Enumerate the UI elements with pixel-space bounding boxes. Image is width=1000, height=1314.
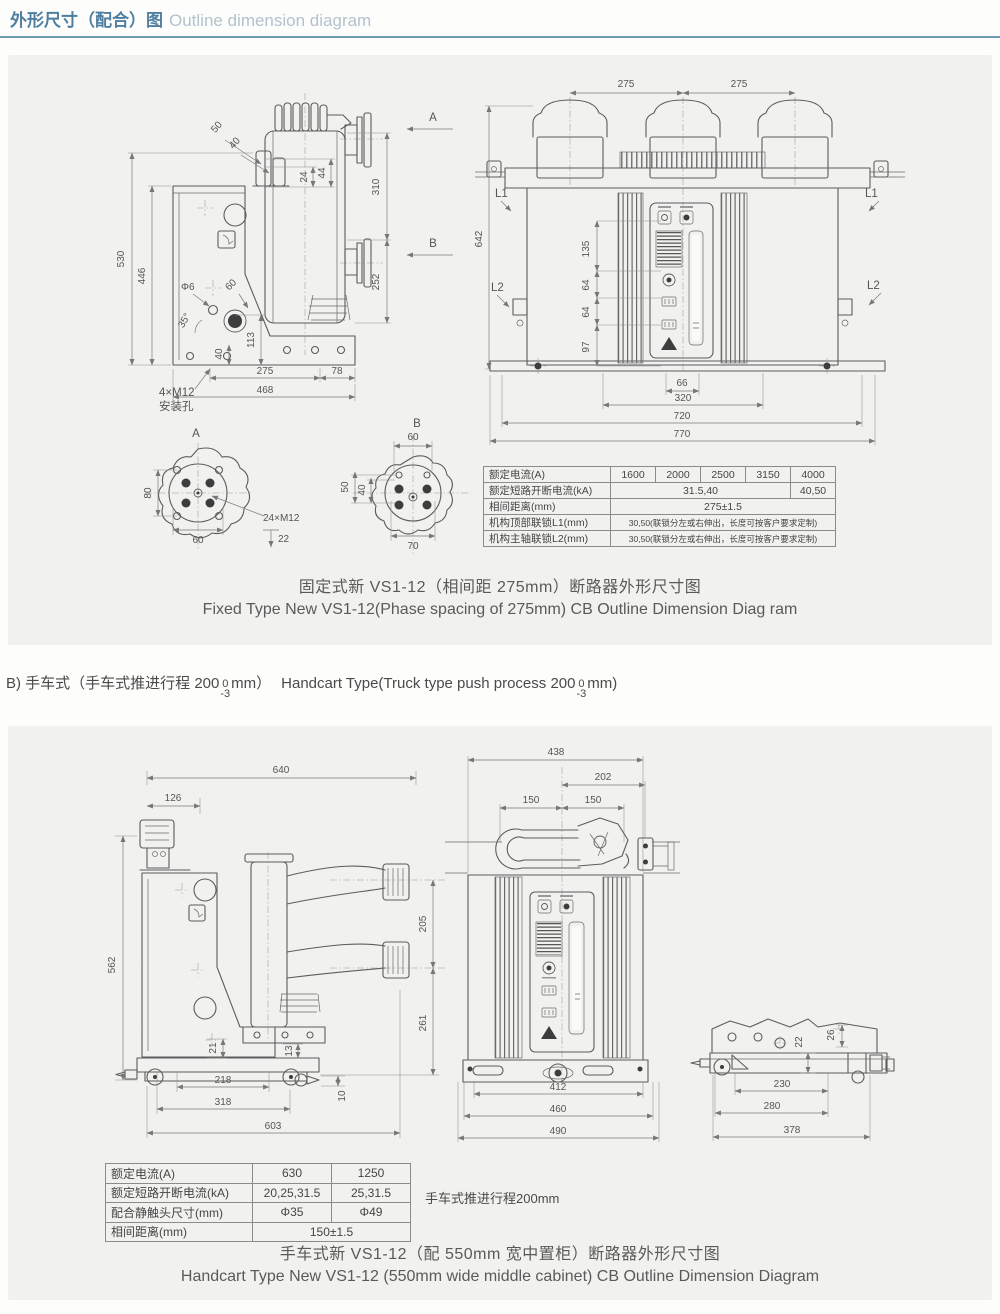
flange-blob-b [372,456,452,534]
dim-label-720: 720 [674,411,691,422]
dim-label-412: 412 [550,1082,567,1093]
detail-a-title: A [192,428,200,440]
page-title-zh: 外形尺寸（配合）图 [10,11,163,30]
spec-label: 额定短路开断电流(kA) [484,483,611,499]
dim-label-230: 230 [774,1079,791,1090]
dim-label-280: 280 [764,1101,781,1112]
upper-arm [287,866,385,904]
dim-label-22: 22 [794,1036,805,1048]
dim-label-275: 275 [257,366,274,377]
spec-label: 额定电流(A) [106,1164,253,1184]
spec-cell: 31.5,40 [611,483,791,499]
lower-arm [287,944,385,978]
handcart-spec-table: 额定电流(A) 630 1250 额定短路开断电流(kA) 20,25,31.5… [105,1163,411,1242]
dim-label-642: 642 [475,230,485,247]
dim-label-44: 44 [317,167,328,179]
dim-label-252: 252 [371,273,382,290]
mechanism-frame [173,186,355,365]
table-row: 机构顶部联锁L1(mm) 30,50(联锁分左或右伸出，长度可按客户要求定制) [484,515,836,531]
dim-label-10: 10 [337,1090,348,1102]
pole-column [251,862,287,1027]
section-arrow-b: B [429,238,437,250]
spec-cell: 150±1.5 [253,1222,411,1242]
table-row: 额定短路开断电流(kA) 31.5,40 40,50 [484,483,836,499]
dim-label-66: 66 [676,378,688,389]
spec-cell: 4000 [791,467,836,483]
dim-label-13: 13 [284,1045,295,1057]
page: 外形尺寸（配合）图Outline dimension diagram 530 4… [0,0,1000,1314]
dim-label-80: 80 [143,487,154,499]
tolerance-stack: 0-3 [220,679,230,699]
dim-label-40-top: 40 [227,135,243,151]
handcart-caption-zh: 手车式新 VS1-12（配 550mm 宽中置柜）断路器外形尺寸图 [8,1240,992,1264]
dim-label-318: 318 [215,1097,232,1108]
dim-label-770: 770 [674,429,691,440]
dim-label-460: 460 [550,1104,567,1115]
dim-label-64a: 64 [581,279,592,291]
dim-label-depth-22: 22 [278,534,290,545]
spec-label: 配合静触头尺寸(mm) [106,1203,253,1223]
fixed-type-panel: 530 446 50 40 44 24 310 252 A B Φ6 60 35… [8,55,992,645]
dim-label-490: 490 [550,1126,567,1137]
spec-cell: 30,50(联锁分左或右伸出，长度可按客户要求定制) [611,515,836,531]
dim-label-261: 261 [418,1014,429,1031]
detail-a-drawing: A 80 60 24×M12 22 [133,423,333,563]
section-b-en-end: mm) [587,675,617,692]
dim-label-150-right: 150 [585,795,602,806]
dim-label-40-bottom: 40 [214,348,225,360]
handcart-travel-note: 手车式推进行程200mm [425,1188,559,1207]
dim-label-78: 78 [331,366,343,377]
dim-label-603: 603 [265,1121,282,1132]
spec-label: 相间距离(mm) [484,499,611,515]
section-b-zh: B) 手车式（手车式推进行程 200 [6,675,219,692]
dim-label-40b: 40 [357,484,368,496]
dim-label-320: 320 [675,393,692,404]
handcart-chassis-view-drawing: 22 26 230 280 378 [690,995,1000,1165]
fixed-caption: 固定式新 VS1-12（相间距 275mm）断路器外形尺寸图 Fixed Typ… [8,573,992,619]
spec-label: 机构主轴联锁L2(mm) [484,531,611,547]
spec-label: 相间距离(mm) [106,1222,253,1242]
pole-column [265,131,345,323]
detail-b-drawing: B 60 50 40 70 [333,415,473,565]
spec-label: 额定电流(A) [484,467,611,483]
spec-cell: 2000 [656,467,701,483]
dim-label-530: 530 [116,250,127,267]
tolerance-lower: -3 [220,689,230,699]
section-arrow-a: A [429,112,437,124]
fixed-front-view-drawing: 275 275 642 L1 L1 L2 L2 135 64 64 97 66 … [475,73,905,465]
dim-label-l1-right: L1 [865,188,878,200]
dim-label-26: 26 [826,1029,837,1041]
dim-label-135: 135 [581,240,592,257]
table-row: 额定短路开断电流(kA) 20,25,31.5 25,31.5 [106,1183,411,1203]
spec-cell: 630 [253,1164,332,1184]
dim-label-150-left: 150 [523,795,540,806]
dim-label-275-right: 275 [731,79,748,90]
spec-cell: 30,50(联锁分左或右伸出，长度可按客户要求定制) [611,531,836,547]
page-header: 外形尺寸（配合）图Outline dimension diagram [10,6,371,31]
spring-coil [280,994,320,1012]
page-title-en: Outline dimension diagram [169,11,371,30]
spec-cell: Φ49 [332,1203,411,1223]
spec-cell: 25,31.5 [332,1183,411,1203]
dim-label-310: 310 [371,178,382,195]
spec-cell: 40,50 [791,483,836,499]
cable-clamp [140,820,190,870]
table-row: 额定电流(A) 1600 2000 2500 3150 4000 [484,467,836,483]
note-24xm12: 24×M12 [263,513,300,524]
handcart-type-panel: 640 126 562 205 261 21 13 10 218 318 603 [8,726,992,1300]
dim-label-378: 378 [784,1125,801,1136]
breaker-body [527,188,838,365]
fixed-caption-en: Fixed Type New VS1-12(Phase spacing of 2… [8,601,992,619]
section-b-zh-end: mm） [231,675,271,692]
dim-label-218: 218 [215,1075,232,1086]
dim-label-205: 205 [418,915,429,932]
insulator-fins [275,103,351,131]
dim-label-60: 60 [223,277,239,293]
dim-label-202: 202 [595,772,612,783]
dim-label-24: 24 [299,171,310,183]
fixed-side-view-drawing: 530 446 50 40 44 24 310 252 A B Φ6 60 35… [115,63,465,463]
frame-top-terminal [253,151,289,186]
tolerance-lower: -3 [576,689,586,699]
dim-label-275-left: 275 [618,79,635,90]
handcart-side-view-drawing: 640 126 562 205 261 21 13 10 218 318 603 [95,740,450,1160]
spec-cell: 2500 [701,467,746,483]
handcart-front-view-drawing: 438 202 150 150 412 460 490 [440,742,705,1162]
detail-b-title: B [413,418,421,430]
note-mount-hole: 安装孔 [159,399,194,413]
spec-label: 额定短路开断电流(kA) [106,1183,253,1203]
dim-label-60a: 60 [192,535,204,546]
table-row: 额定电流(A) 630 1250 [106,1164,411,1184]
header-divider [0,36,1000,38]
dim-label-l2-left: L2 [491,282,504,294]
spring-coil [308,295,350,320]
dim-label-l1-left: L1 [495,188,508,200]
section-b-en: Handcart Type(Truck type push process 20… [281,675,575,692]
spec-label: 机构顶部联锁L1(mm) [484,515,611,531]
spec-cell: 275±1.5 [611,499,836,515]
dim-label-446: 446 [137,267,148,284]
dim-label-113: 113 [246,332,257,348]
spec-cell: 3150 [746,467,791,483]
table-row: 机构主轴联锁L2(mm) 30,50(联锁分左或右伸出，长度可按客户要求定制) [484,531,836,547]
control-panel [650,203,713,358]
spec-cell: 1600 [611,467,656,483]
spec-cell: 1250 [332,1164,411,1184]
table-row: 相间距离(mm) 150±1.5 [106,1222,411,1242]
handcart-caption-en: Handcart Type New VS1-12 (550mm wide mid… [8,1268,992,1286]
dim-label-468: 468 [257,385,274,396]
dim-label-60b: 60 [407,432,419,443]
table-row: 配合静触头尺寸(mm) Φ35 Φ49 [106,1203,411,1223]
dim-label-640: 640 [273,765,290,776]
dim-label-64b: 64 [581,306,592,318]
dim-label-97: 97 [581,341,592,353]
fixed-caption-zh: 固定式新 VS1-12（相间距 275mm）断路器外形尺寸图 [8,573,992,597]
table-row: 相间距离(mm) 275±1.5 [484,499,836,515]
spec-cell: Φ35 [253,1203,332,1223]
dim-label-562: 562 [107,956,118,973]
handcart-caption: 手车式新 VS1-12（配 550mm 宽中置柜）断路器外形尺寸图 Handca… [8,1240,992,1286]
dim-label-50: 50 [209,119,225,135]
fixed-spec-table: 额定电流(A) 1600 2000 2500 3150 4000 额定短路开断电… [483,466,836,547]
dim-label-70: 70 [407,541,419,552]
dim-label-438: 438 [548,747,565,758]
dim-label-21: 21 [208,1042,219,1054]
dim-label-phi6: Φ6 [181,282,195,293]
spec-cell: 20,25,31.5 [253,1183,332,1203]
tolerance-stack: 0-3 [576,679,586,699]
section-b-heading: B) 手车式（手车式推进行程 2000-3mm）Handcart Type(Tr… [6,672,617,699]
dim-label-l2-right: L2 [867,280,880,292]
dim-label-50b: 50 [340,481,351,493]
dim-label-126: 126 [165,793,182,804]
